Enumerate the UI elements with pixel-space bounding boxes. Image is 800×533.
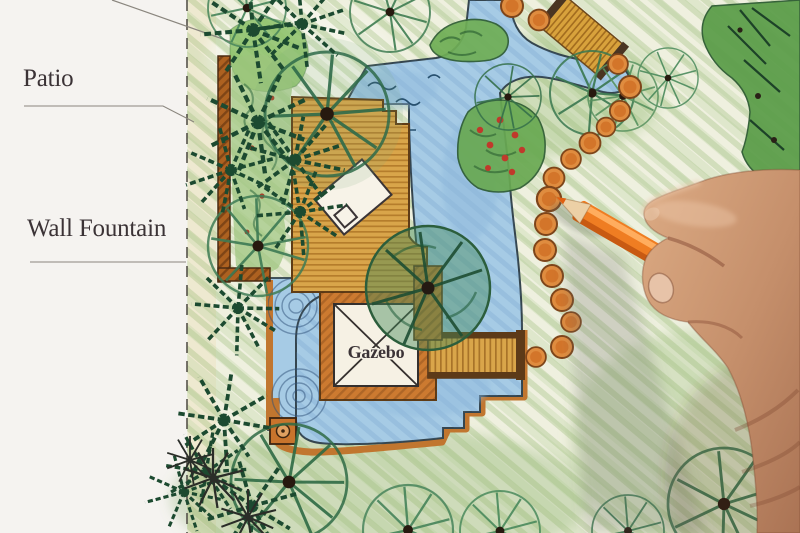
berry-shrub xyxy=(458,100,545,192)
plan-photo: Patio Wall Fountain xyxy=(0,0,800,533)
basin-coping xyxy=(266,280,273,430)
stepping-stone xyxy=(534,239,556,261)
gazebo-shade-tree xyxy=(366,226,490,350)
fountain-pump-box xyxy=(270,418,296,444)
stepping-stone xyxy=(551,336,573,358)
stepping-stone xyxy=(501,0,523,17)
stepping-stone xyxy=(544,168,565,189)
stepping-stone xyxy=(610,101,630,121)
stepping-stone xyxy=(529,10,550,31)
stepping-stone xyxy=(561,149,581,169)
stepping-stone xyxy=(526,347,546,367)
stepping-stone xyxy=(541,265,563,287)
stepping-stone xyxy=(619,76,641,98)
stepping-stone xyxy=(580,133,601,154)
garden-plan-drawing: Patio Wall Fountain xyxy=(0,0,800,533)
gazebo-label: Gazebo xyxy=(348,342,405,362)
stepping-stone xyxy=(597,118,616,137)
stepping-stone xyxy=(535,213,557,235)
stepping-stone xyxy=(608,54,628,74)
wall-fountain-label: Wall Fountain xyxy=(27,215,167,242)
patio-label: Patio xyxy=(23,65,73,92)
